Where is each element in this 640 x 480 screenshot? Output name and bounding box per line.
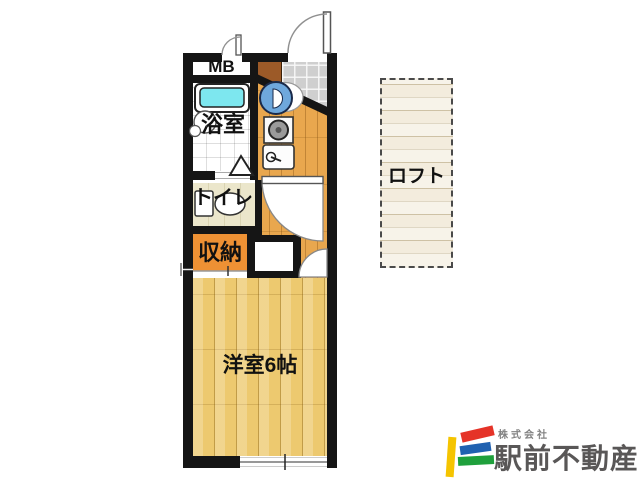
entrance-door-arc [288,14,327,53]
plan-linework [0,0,640,480]
meter-box-door-leaf [236,35,241,55]
label-bathroom: 浴室 [193,114,253,136]
logo-green-bar [458,455,494,466]
logo-company-name: 駅前不動産 [494,437,639,477]
stove-burner-center [276,127,282,133]
label-loft: ロフト [380,167,453,186]
entrance-door-leaf [324,12,331,53]
bathtub-icon [200,88,244,107]
label-main-room: 洋室6帖 [193,355,327,376]
corridor-door-swing [262,180,323,241]
label-meter-box: MB [193,58,250,75]
corridor-door-leaf [262,177,323,184]
floorplan-image: MB 浴室 トイレ 収納 洋室6帖 ロフト 株式会社 駅前不動産 [0,0,640,480]
label-toilet: トイレ [191,188,255,208]
bathroom-door-triangle-icon [230,156,253,175]
label-storage: 収納 [193,242,247,264]
main-room-door-swing [299,249,327,277]
